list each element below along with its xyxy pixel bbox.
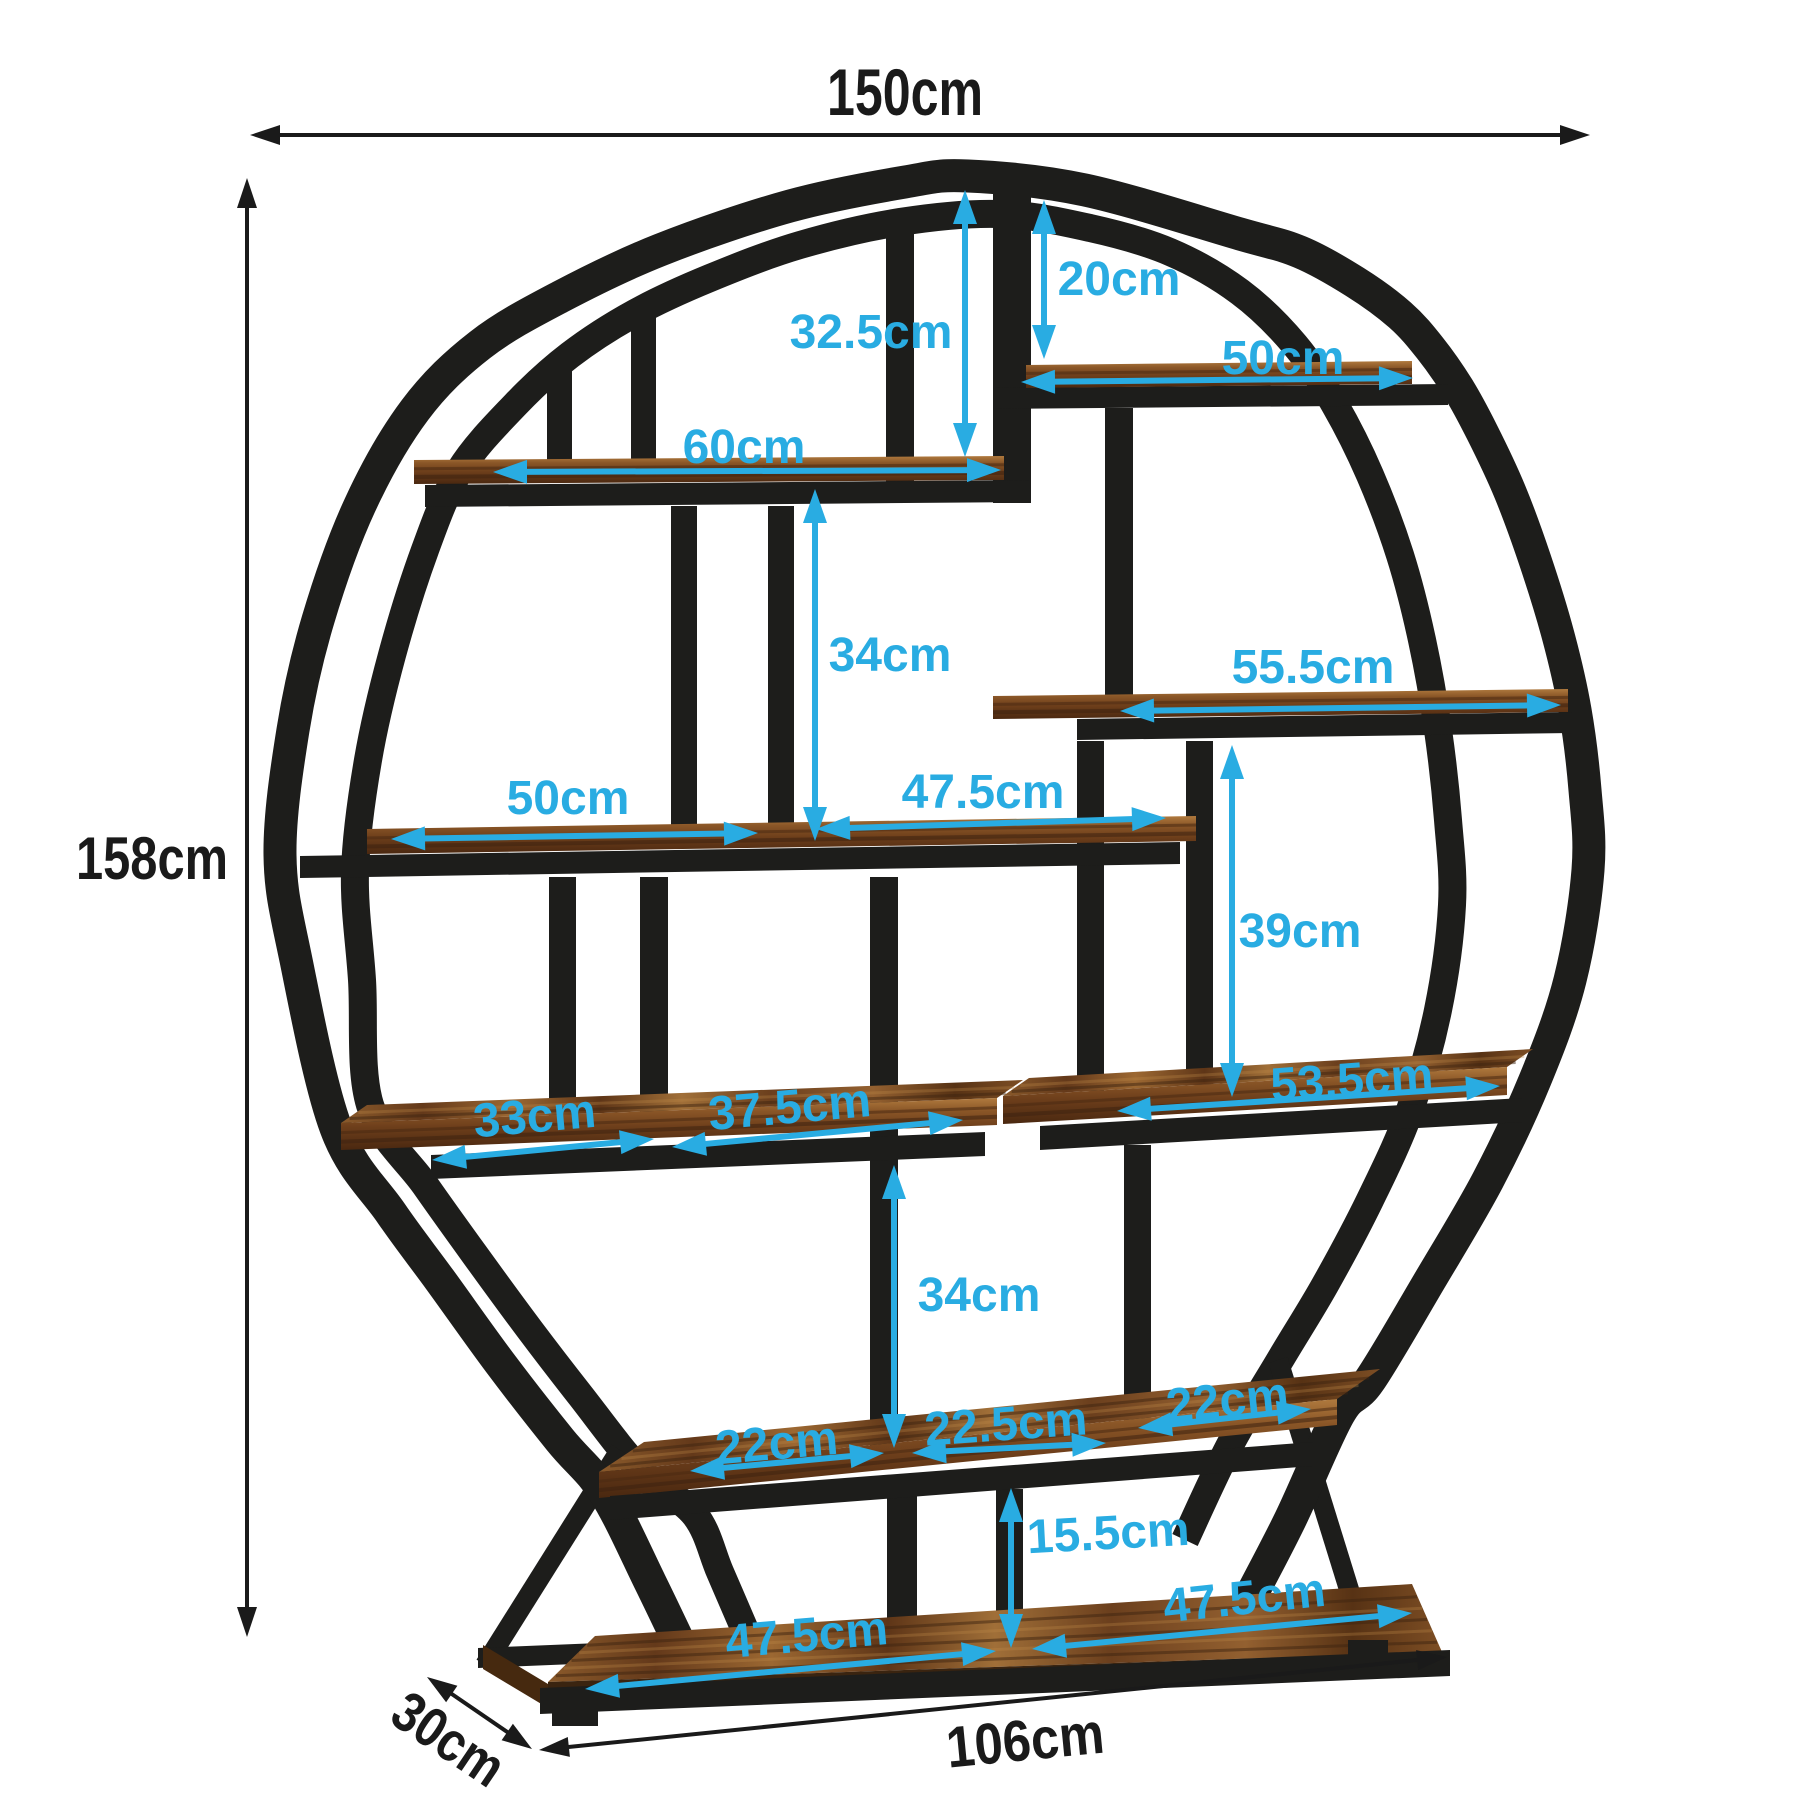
svg-text:15.5cm: 15.5cm	[1026, 1503, 1191, 1564]
svg-text:158cm: 158cm	[76, 825, 228, 892]
svg-text:53.5cm: 53.5cm	[1269, 1048, 1435, 1112]
svg-text:22.5cm: 22.5cm	[923, 1392, 1089, 1456]
svg-text:60cm: 60cm	[683, 421, 806, 474]
svg-text:34cm: 34cm	[829, 629, 952, 682]
svg-text:20cm: 20cm	[1058, 253, 1181, 306]
svg-text:32.5cm: 32.5cm	[790, 306, 953, 359]
svg-text:150cm: 150cm	[827, 55, 983, 129]
svg-text:34cm: 34cm	[918, 1269, 1041, 1322]
svg-text:33cm: 33cm	[471, 1085, 598, 1148]
svg-text:50cm: 50cm	[507, 772, 630, 825]
svg-text:39cm: 39cm	[1239, 905, 1362, 958]
svg-text:47.5cm: 47.5cm	[902, 766, 1065, 819]
svg-text:50cm: 50cm	[1222, 332, 1345, 385]
svg-text:55.5cm: 55.5cm	[1232, 641, 1395, 694]
svg-text:22cm: 22cm	[713, 1412, 840, 1475]
